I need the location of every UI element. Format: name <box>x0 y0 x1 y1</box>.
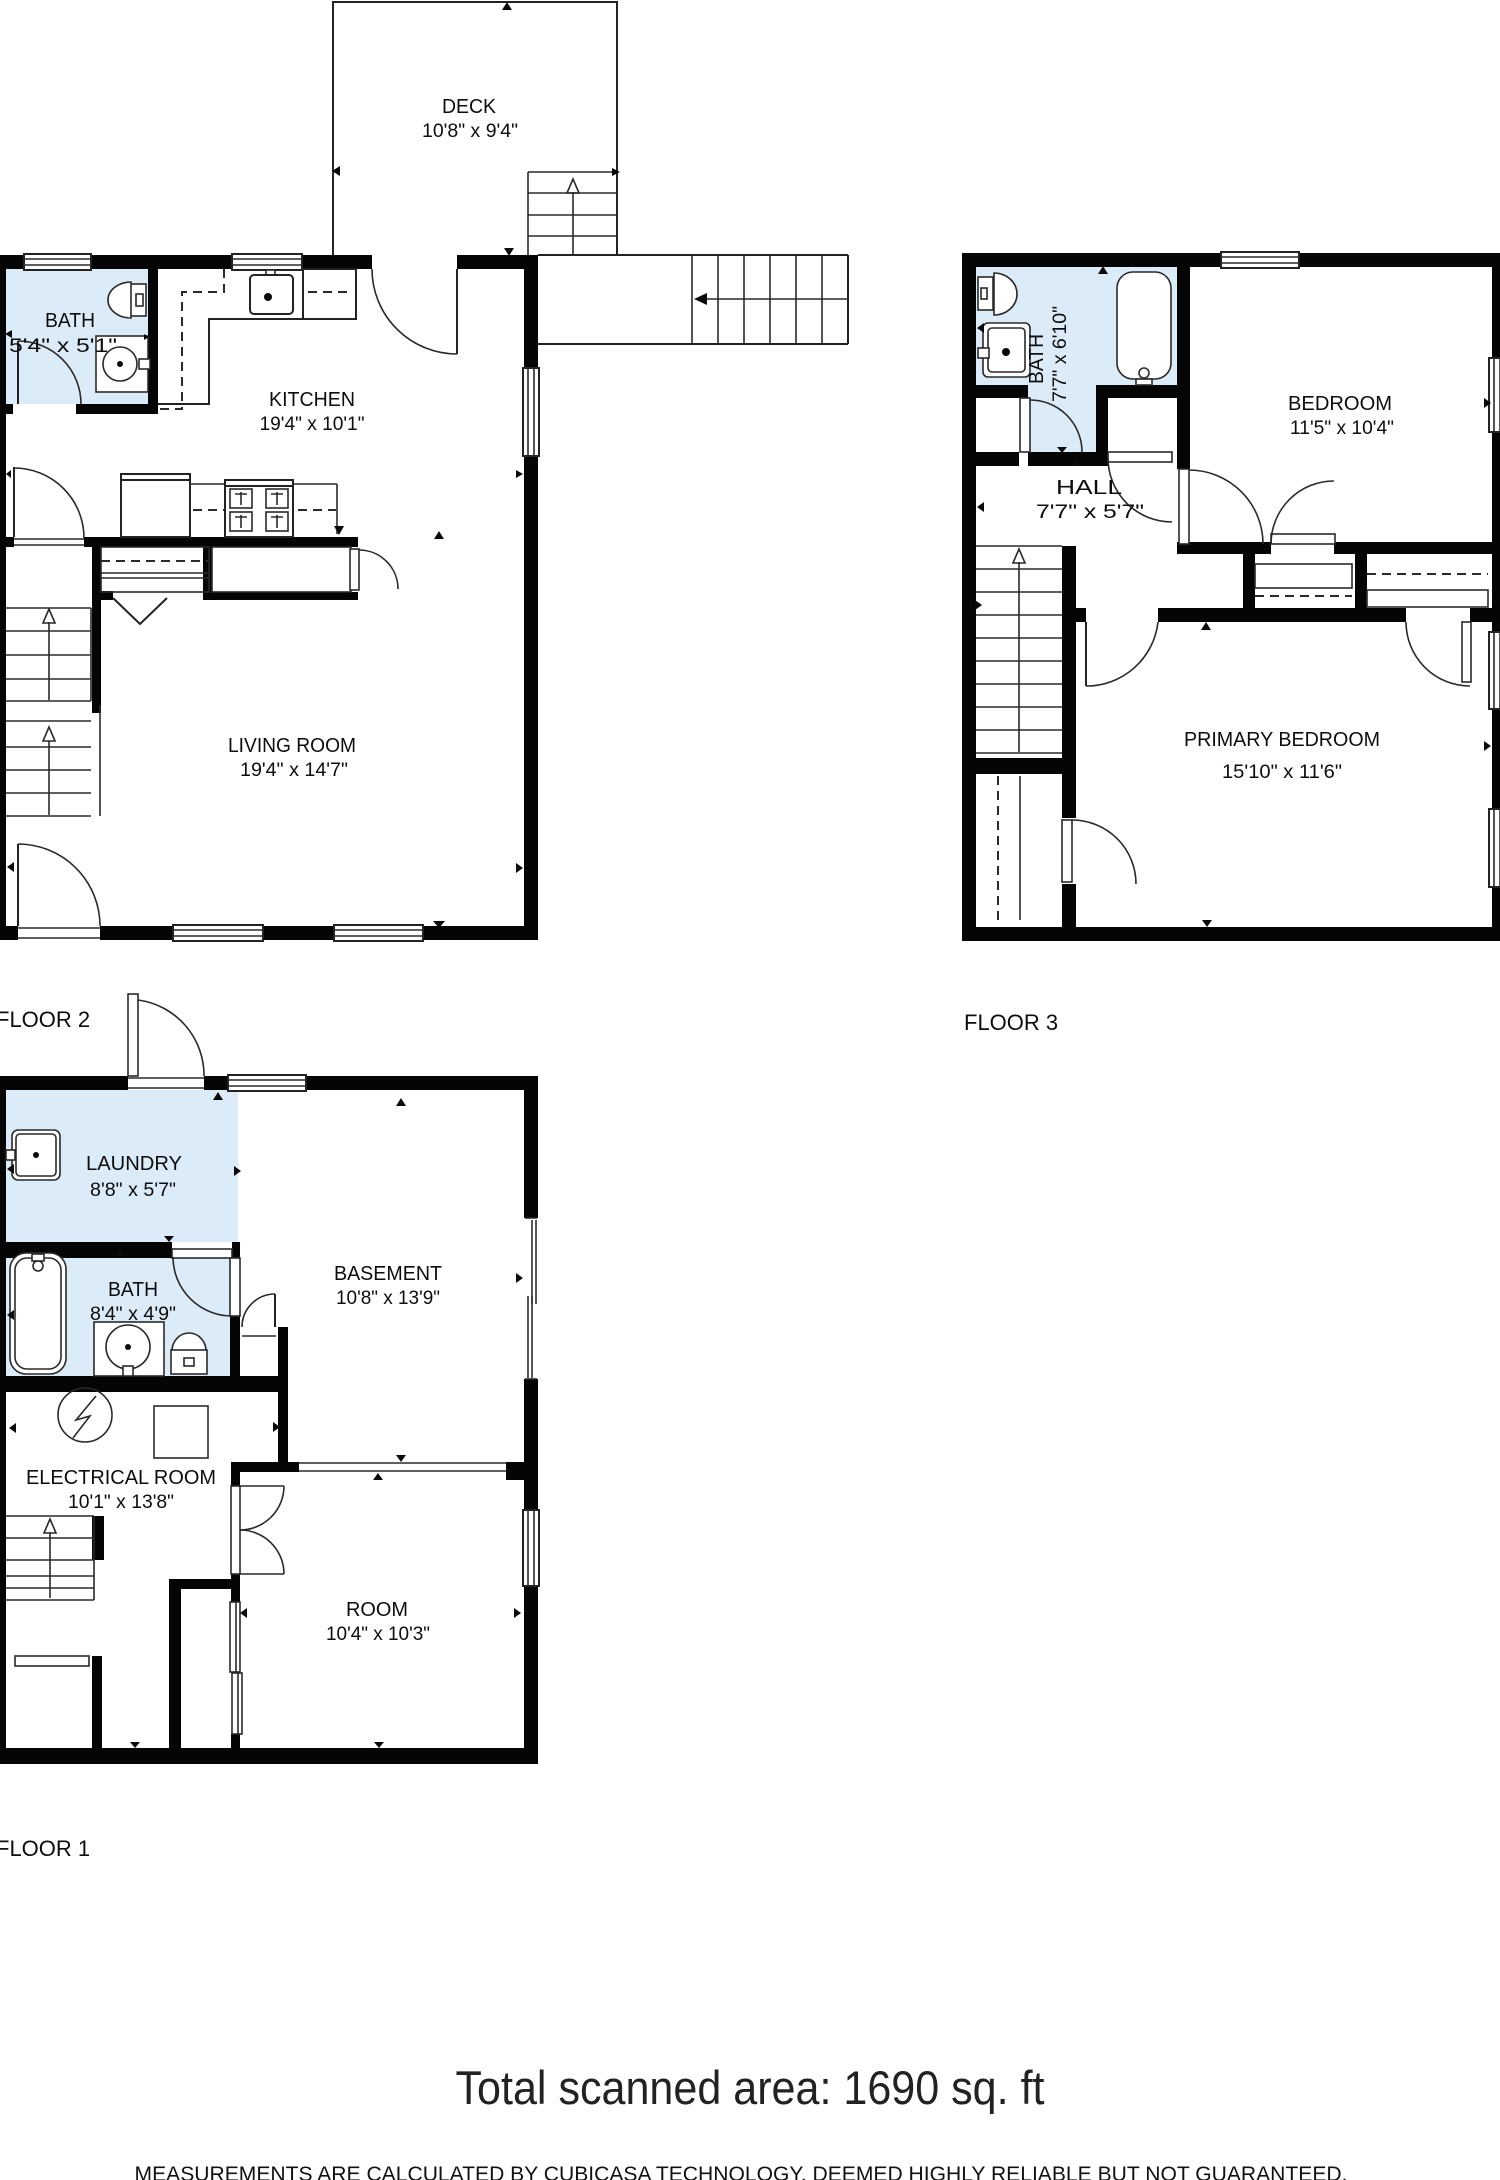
svg-text:BATH: BATH <box>1026 334 1048 384</box>
svg-text:ROOM: ROOM <box>346 1599 408 1621</box>
svg-text:HALL: HALL <box>1056 477 1122 499</box>
svg-text:PRIMARY BEDROOM: PRIMARY BEDROOM <box>1184 729 1380 751</box>
svg-text:BATH: BATH <box>108 1279 158 1301</box>
svg-text:FLOOR 2: FLOOR 2 <box>0 1007 90 1032</box>
svg-text:10'1" x 13'8": 10'1" x 13'8" <box>68 1492 174 1513</box>
svg-text:7'7" x 5'7": 7'7" x 5'7" <box>1036 502 1144 523</box>
svg-text:8'4" x 4'9": 8'4" x 4'9" <box>90 1304 176 1325</box>
svg-text:ELECTRICAL ROOM: ELECTRICAL ROOM <box>26 1467 216 1489</box>
svg-text:DECK: DECK <box>442 96 497 118</box>
svg-text:10'8" x 13'9": 10'8" x 13'9" <box>336 1288 440 1309</box>
svg-text:BEDROOM: BEDROOM <box>1288 393 1392 415</box>
svg-text:FLOOR 1: FLOOR 1 <box>0 1836 90 1861</box>
svg-text:FLOOR 3: FLOOR 3 <box>964 1010 1058 1035</box>
svg-text:LAUNDRY: LAUNDRY <box>86 1153 182 1175</box>
svg-text:5'4" x 5'1": 5'4" x 5'1" <box>9 336 117 357</box>
svg-text:8'8" x 5'7": 8'8" x 5'7" <box>90 1180 176 1201</box>
svg-text:Total scanned area: 1690 sq. f: Total scanned area: 1690 sq. ft <box>456 2061 1045 2114</box>
svg-text:BASEMENT: BASEMENT <box>334 1263 442 1285</box>
svg-text:10'4" x 10'3": 10'4" x 10'3" <box>326 1624 430 1645</box>
svg-text:MEASUREMENTS ARE CALCULATED BY: MEASUREMENTS ARE CALCULATED BY CUBICASA … <box>135 2163 1348 2180</box>
svg-text:KITCHEN: KITCHEN <box>269 389 355 411</box>
svg-text:19'4" x 14'7": 19'4" x 14'7" <box>240 760 348 781</box>
svg-text:15'10" x 11'6": 15'10" x 11'6" <box>1222 762 1342 783</box>
svg-text:11'5" x 10'4": 11'5" x 10'4" <box>1290 418 1394 439</box>
svg-text:19'4" x 10'1": 19'4" x 10'1" <box>260 414 365 435</box>
svg-text:10'8" x 9'4": 10'8" x 9'4" <box>422 121 518 142</box>
svg-text:7'7" x 6'10": 7'7" x 6'10" <box>1050 306 1071 402</box>
svg-text:LIVING ROOM: LIVING ROOM <box>228 735 356 757</box>
svg-text:BATH: BATH <box>45 310 95 332</box>
